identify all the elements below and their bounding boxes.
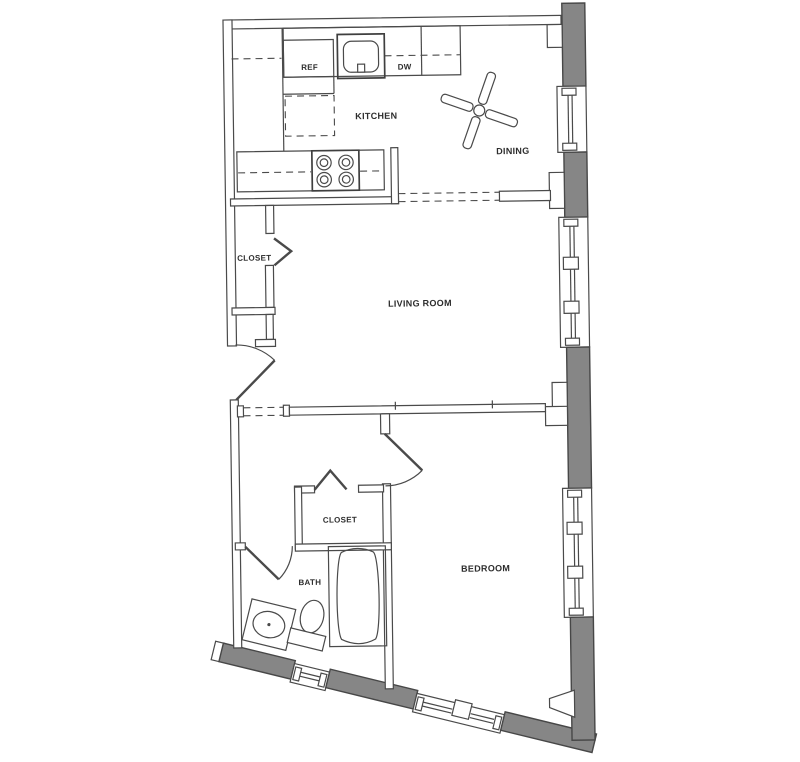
door-jamb-wall [380,414,389,434]
window-mullion [452,700,472,720]
counter-divider [421,26,422,75]
wall-segment [570,617,595,740]
hall-wall [266,314,273,339]
cabinet-line [283,94,334,95]
kitchen-label: KITCHEN [355,111,397,122]
closet-wall [266,205,274,233]
hall-wall [255,339,275,346]
living-room-label: LIVING ROOM [388,298,452,309]
dishwasher-label: DW [398,62,412,71]
dining-label: DINING [496,146,529,156]
window-mullion [567,522,582,534]
closet-wall [232,307,275,315]
bath-wall-stub [235,543,245,550]
closet-wall [295,487,303,549]
wall-pier [545,406,567,425]
refrigerator-label: REF [301,63,318,72]
opening-jamb [283,405,289,416]
window-mullion [563,257,578,269]
wall-pier [552,382,567,407]
wall-segment [562,3,586,86]
floor-plan-drawing: KITCHEN DINING LIVING ROOM CLOSET CLOSET… [0,0,800,762]
window-bedroom-east [563,488,594,617]
window-dining [557,86,587,152]
opening-jamb [237,406,243,417]
wall-segment [567,347,592,488]
window-mullion [564,301,579,313]
bedroom-closet-label: CLOSET [323,515,357,524]
bath-label: BATH [298,578,321,587]
window-living-room [559,217,590,347]
window-mullion [568,566,583,578]
bedroom-label: BEDROOM [461,563,510,574]
wall-stub [499,191,550,202]
kitchen-divider-wall [230,197,398,206]
floor-plan-page: KITCHEN DINING LIVING ROOM CLOSET CLOSET… [0,0,800,762]
closet-wall [358,485,383,492]
wall-pier [549,172,565,208]
wall-segment [564,152,588,217]
background [0,0,800,762]
wall-pier [547,24,562,47]
kitchen-return-wall [391,148,399,204]
entry-closet-label: CLOSET [237,253,271,262]
closet-wall [265,265,274,307]
